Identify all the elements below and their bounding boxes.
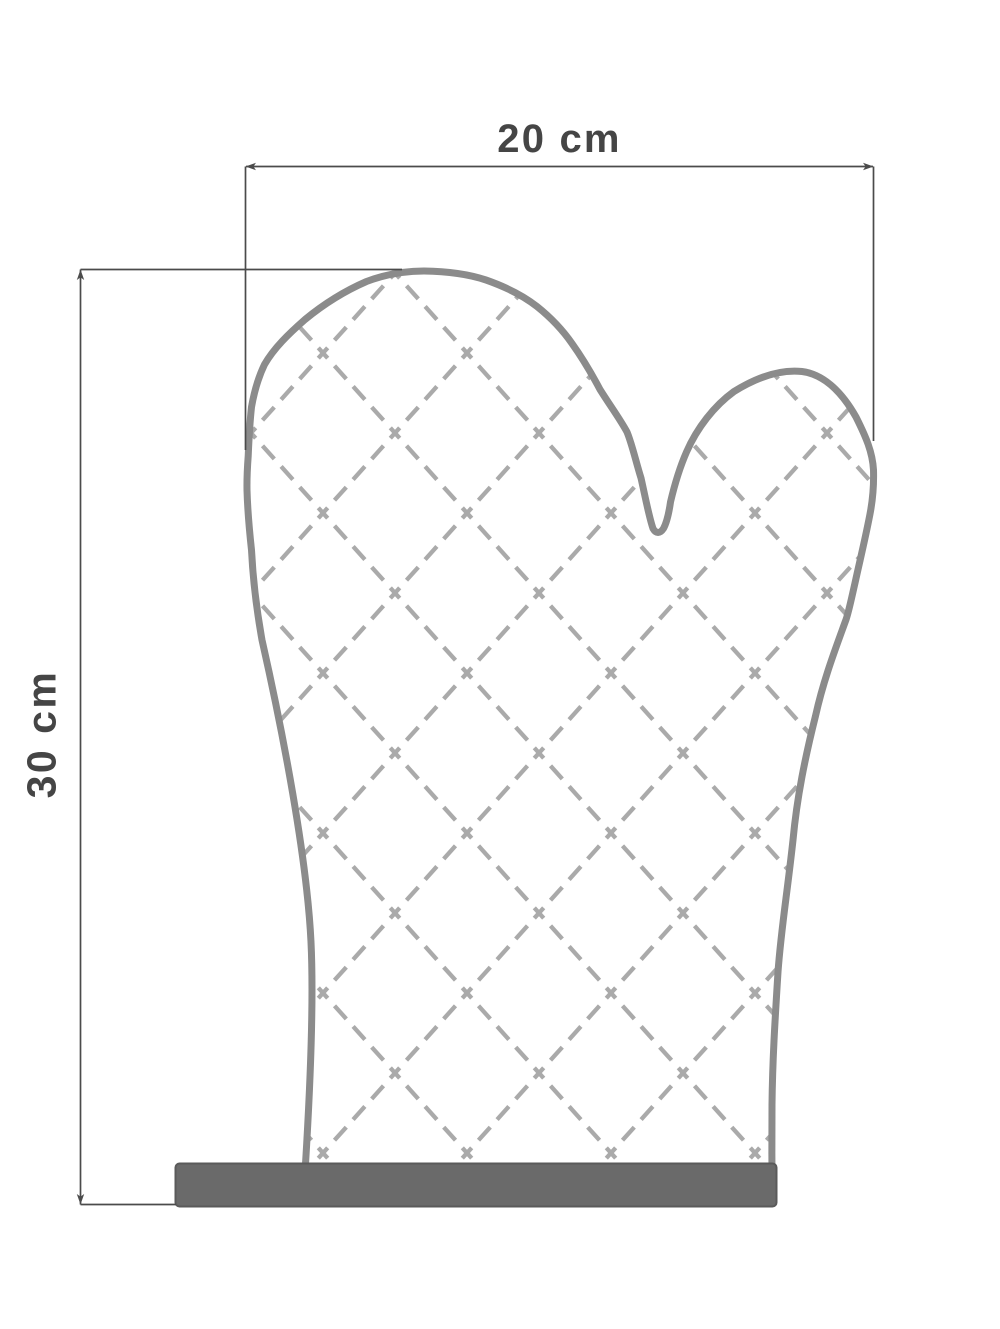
- svg-text:30 cm: 30 cm: [19, 670, 65, 799]
- svg-text:20 cm: 20 cm: [497, 117, 621, 161]
